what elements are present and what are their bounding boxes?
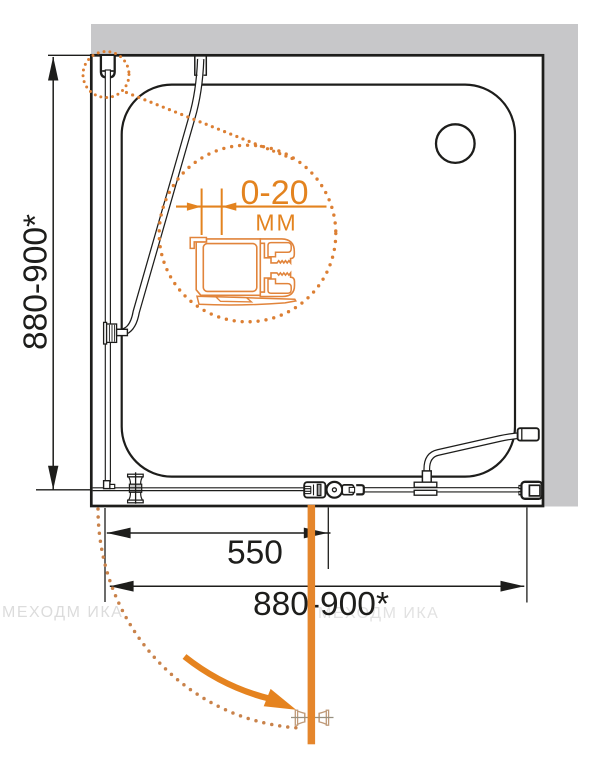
svg-text:ММ: ММ xyxy=(255,210,297,236)
svg-text:550: 550 xyxy=(227,535,283,572)
svg-text:0-20: 0-20 xyxy=(240,174,308,212)
svg-text:МЕХОДМ ИКА: МЕХОДМ ИКА xyxy=(2,604,123,621)
svg-text:880-900*: 880-900* xyxy=(18,214,55,350)
svg-text:880-900*: 880-900* xyxy=(253,586,389,623)
